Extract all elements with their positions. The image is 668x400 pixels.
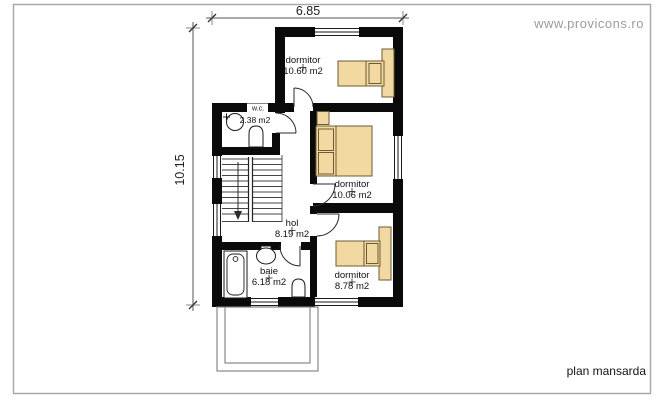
door-bathroom (280, 246, 300, 266)
balcony (217, 307, 318, 371)
door-bedroom-top (294, 88, 313, 107)
nightstand (317, 112, 329, 125)
label-bedroom-bottom: dormitor 8.78 m2 (335, 270, 370, 292)
window-bottom-bedroom (315, 297, 358, 307)
room-name: w.c. (251, 106, 264, 113)
label-bedroom-top: dormitor 10.60 m2 (283, 55, 323, 77)
wall-segment (313, 203, 403, 213)
bed-pillow (367, 244, 379, 264)
window-top (315, 27, 359, 37)
website-watermark: www.provicons.ro (533, 16, 644, 31)
wall-segment (222, 242, 281, 250)
wall-segment (301, 242, 317, 250)
wall-segment (313, 103, 403, 112)
dimension-top: 6.85 (206, 4, 409, 25)
window-left-upper (212, 156, 222, 178)
bed-pillow (319, 129, 334, 151)
door-wc (276, 113, 296, 133)
bed-middle-bedroom (316, 112, 372, 177)
bed-pillow (369, 64, 381, 84)
label-bathroom: baie 6.18 m2 (252, 266, 286, 288)
stair-direction-arrow (234, 162, 242, 220)
bed-headboard (379, 227, 391, 280)
label-bedroom-middle: dormitor 10.06 m2 (332, 179, 372, 201)
dimension-left: 10.15 (173, 22, 200, 311)
wc-toilet (249, 126, 263, 147)
bed-top-bedroom (338, 49, 394, 97)
wall-segment (212, 147, 280, 155)
bathtub (224, 251, 247, 298)
bed-pillow (319, 153, 334, 175)
dimension-height-label: 10.15 (173, 154, 187, 185)
plan-caption: plan mansarda (567, 364, 647, 378)
door-bedroom-bottom (317, 214, 339, 236)
bathroom-toilet (292, 279, 305, 297)
room-area: 2.38 m2 (240, 115, 271, 125)
floor-plan-page: www.provicons.ro 6.85 10.15 (0, 0, 668, 400)
floor-plan-canvas: www.provicons.ro 6.85 10.15 (0, 0, 668, 400)
dimension-width-label: 6.85 (296, 4, 320, 18)
staircase (222, 155, 282, 222)
window-right (393, 136, 403, 179)
window-left-lower (212, 204, 222, 236)
window-bottom-bath (251, 297, 278, 307)
